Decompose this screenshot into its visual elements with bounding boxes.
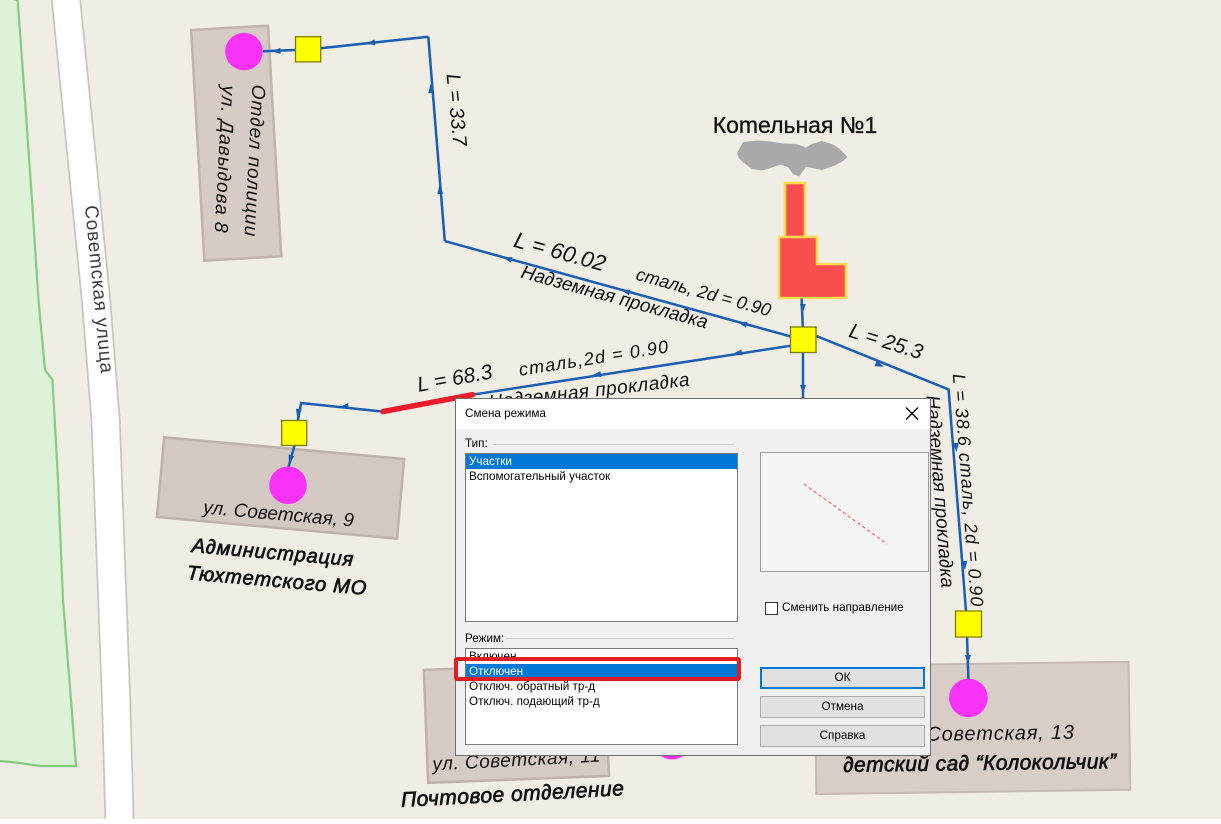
svg-text:Коmельная №1: Коmельная №1 xyxy=(713,112,878,138)
svg-text:На∂земная прокла∂ка: На∂земная прокла∂ка xyxy=(519,262,711,333)
svg-text:сmаль,2d = 0.90: сmаль,2d = 0.90 xyxy=(517,336,670,380)
svg-text:L = 25.3: L = 25.3 xyxy=(846,319,926,364)
svg-text:L = 33.7: L = 33.7 xyxy=(442,73,471,148)
svg-text:L = 68.3: L = 68.3 xyxy=(415,360,494,397)
